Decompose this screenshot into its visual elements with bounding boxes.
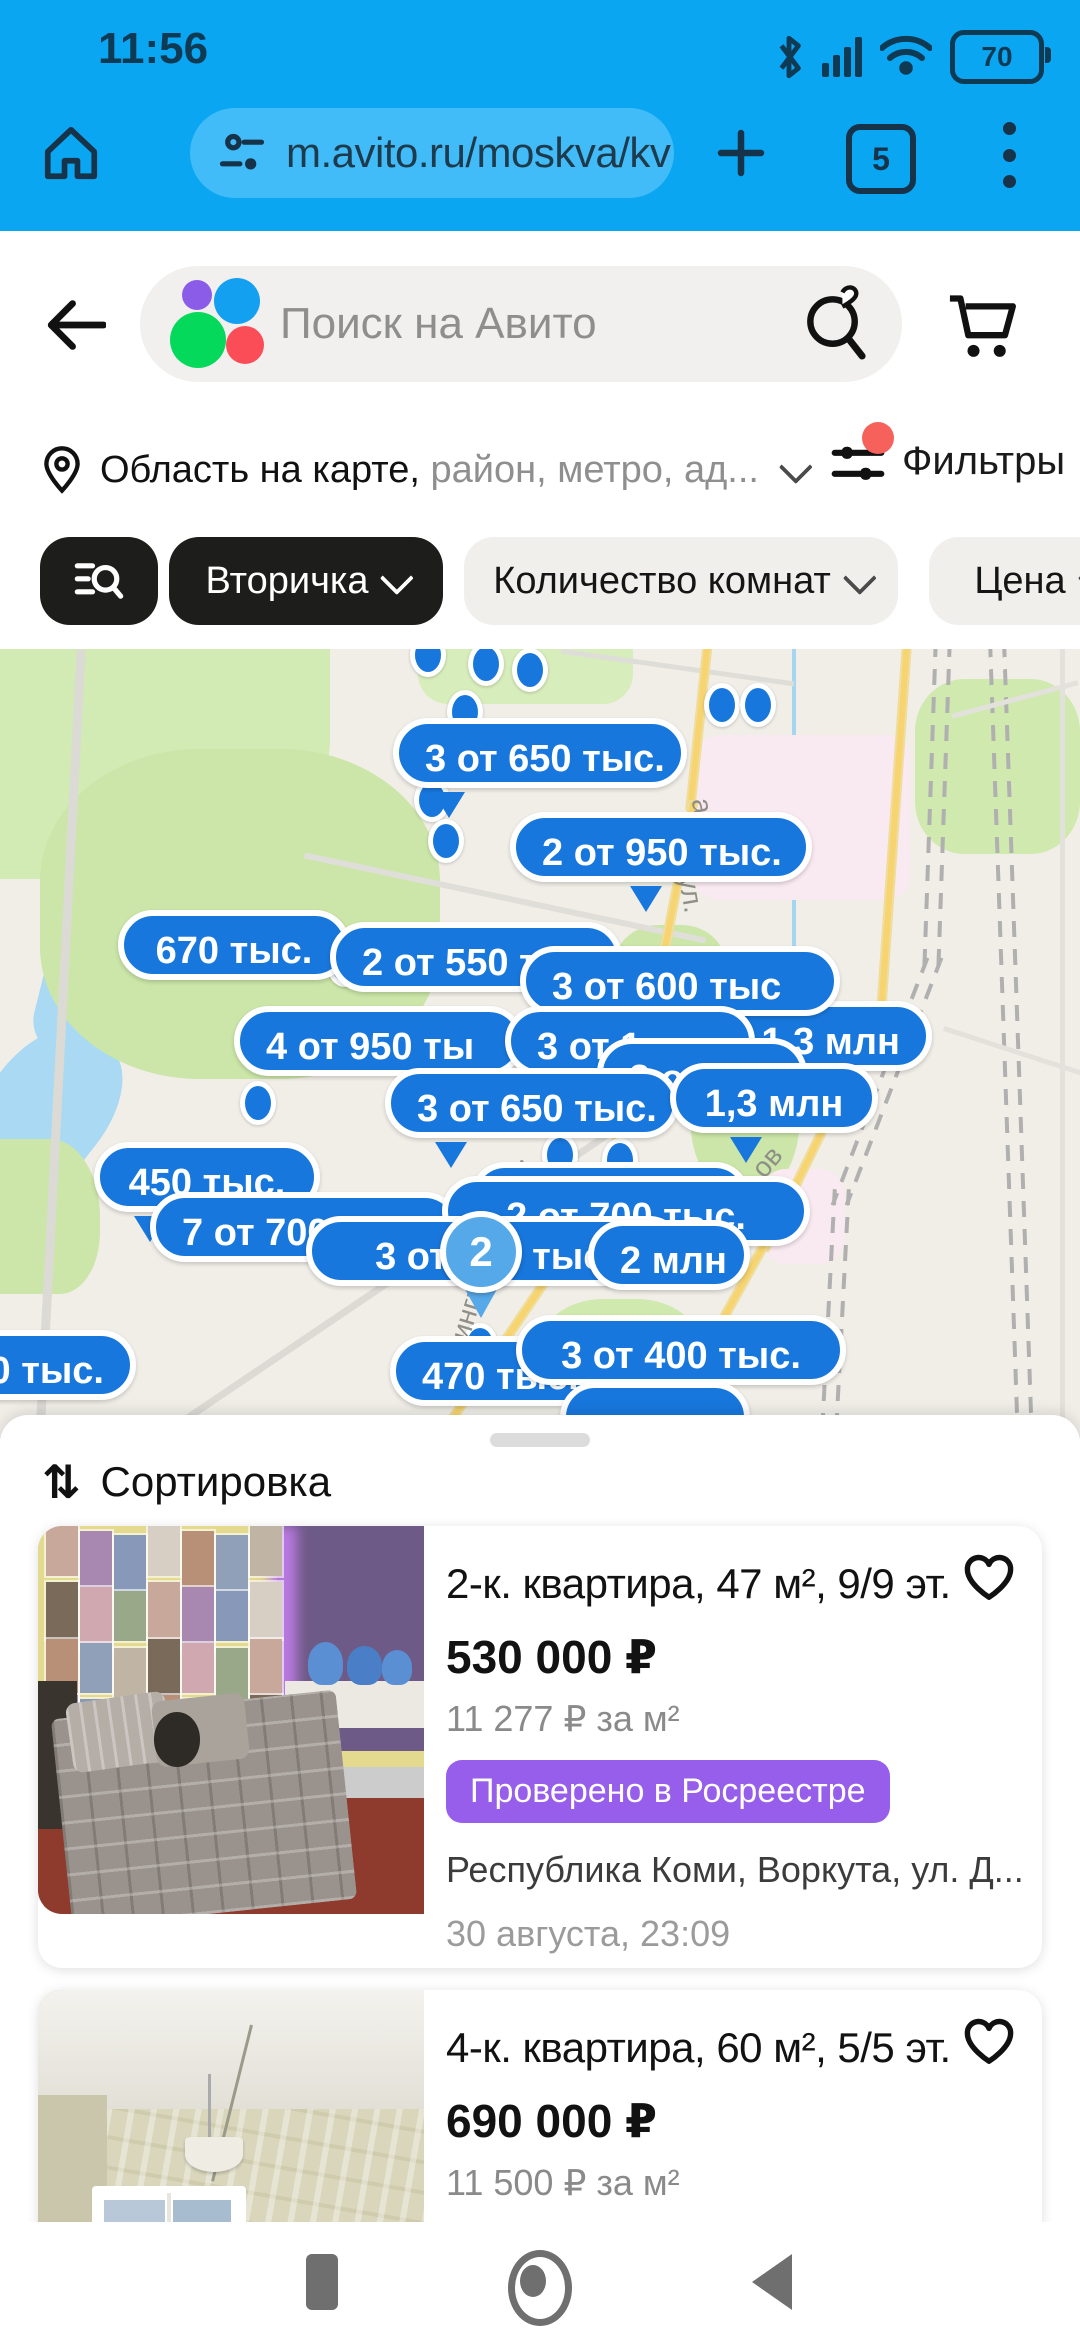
browser-menu-button[interactable] — [1002, 122, 1016, 188]
listing-address: Республика Коми, Воркута, ул. Д... — [446, 1849, 1006, 1891]
price-chip[interactable]: Цена — [929, 537, 1080, 625]
chevron-down-icon — [380, 561, 414, 595]
listing-price-per-m2: 11 277 ₽ за м² — [446, 1698, 1006, 1740]
map-price-bubble[interactable]: 1,3 млн — [670, 1063, 878, 1133]
tab-switcher-button[interactable]: 5 — [846, 124, 916, 194]
sort-label: Сортировка — [101, 1458, 332, 1506]
battery-icon: 70 — [950, 30, 1044, 84]
search-list-icon — [73, 557, 125, 605]
map-dot[interactable] — [512, 649, 548, 692]
site-settings-icon[interactable] — [216, 127, 268, 179]
back-nav-button[interactable] — [752, 2254, 792, 2310]
search-input[interactable]: Поиск на Авито — [140, 266, 902, 382]
rooms-chip-label: Количество комнат — [493, 560, 831, 603]
map-price-bubble[interactable]: 2 от 950 тыс. — [510, 812, 812, 882]
battery-level: 70 — [981, 41, 1012, 73]
home-nav-button[interactable] — [508, 2250, 572, 2326]
search-placeholder: Поиск на Авито — [280, 299, 798, 349]
map-price-bubble[interactable]: 0 тыс. — [0, 1330, 136, 1400]
map-dot[interactable] — [428, 819, 464, 863]
tab-count: 5 — [872, 141, 890, 178]
saved-search-chip[interactable] — [40, 537, 158, 625]
chevron-down-icon — [779, 450, 813, 484]
chevron-down-icon — [843, 561, 877, 595]
search-favorites-icon[interactable] — [798, 284, 872, 364]
map-cluster-pin[interactable]: 2 — [440, 1211, 522, 1293]
filters-label: Фильтры — [902, 439, 1065, 484]
listing-price: 690 000 ₽ — [446, 2094, 1006, 2148]
cart-button[interactable] — [944, 288, 1024, 364]
category-chip[interactable]: Вторичка — [169, 537, 443, 625]
map-dot[interactable] — [704, 683, 740, 727]
filters-icon — [830, 436, 886, 486]
map-price-bubble[interactable]: 670 тыс. — [118, 910, 350, 980]
signal-icon — [822, 37, 862, 77]
map-dot[interactable] — [740, 683, 776, 727]
sort-button[interactable]: ⇅ Сортировка — [42, 1455, 331, 1509]
sort-icon: ⇅ — [42, 1455, 81, 1509]
listing-photo — [38, 1526, 424, 1914]
bluetooth-icon — [774, 34, 804, 80]
filters-button[interactable]: Фильтры — [830, 436, 1065, 486]
map-dot[interactable] — [468, 649, 504, 686]
geo-primary: Область на карте, — [100, 449, 420, 492]
url-text: m.avito.ru/moskva/kv — [286, 129, 670, 177]
map-price-bubble[interactable]: 3 от 400 тыс. — [516, 1315, 846, 1385]
category-chip-label: Вторичка — [206, 560, 369, 603]
home-button[interactable] — [36, 118, 106, 188]
map-price-bubble[interactable]: 2 млн — [588, 1220, 750, 1290]
listing-date: 30 августа, 23:09 — [446, 1913, 1006, 1955]
filters-alert-dot — [862, 422, 894, 454]
verified-badge: Проверено в Росреестре — [446, 1760, 890, 1823]
status-time: 11:56 — [98, 24, 208, 74]
map-bubble-tail — [630, 886, 662, 912]
map-price-bubble[interactable]: 3 от 650 тыс. — [385, 1068, 679, 1138]
sheet-drag-handle[interactable] — [490, 1433, 590, 1447]
map-bubble-tail — [435, 1142, 467, 1168]
map-bubble-tail — [730, 1137, 762, 1163]
phone-screen: 11:56 70 — [0, 0, 1080, 2340]
listing-card[interactable]: 2-к. квартира, 47 м², 9/9 эт. 530 000 ₽ … — [38, 1526, 1042, 1968]
geo-secondary: район, метро, ад... — [420, 449, 759, 492]
map-dot[interactable] — [240, 1081, 276, 1125]
map-price-bubble[interactable]: 3 от 650 тыс. — [393, 718, 687, 788]
listing-price: 530 000 ₽ — [446, 1630, 1006, 1684]
map-dot[interactable] — [410, 649, 446, 677]
listing-title: 2-к. квартира, 47 м², 9/9 эт. — [446, 1554, 986, 1614]
wifi-icon — [880, 34, 932, 80]
map-pin-icon — [40, 444, 84, 496]
rooms-chip[interactable]: Количество комнат — [464, 537, 898, 625]
results-sheet: ⇅ Сортировка — [0, 1415, 1080, 2340]
new-tab-button[interactable] — [706, 118, 776, 188]
price-chip-label: Цена — [974, 560, 1065, 603]
url-bar[interactable]: m.avito.ru/moskva/kv — [190, 108, 674, 198]
android-navbar — [0, 2222, 1080, 2340]
map-canvas[interactable]: аул.овЛенинградская ул.3 от 650 тыс.2 от… — [0, 649, 1080, 1439]
recents-button[interactable] — [306, 2254, 338, 2310]
map-price-bubble[interactable]: 4 от 950 ты — [234, 1006, 524, 1076]
back-button[interactable] — [44, 296, 106, 354]
listing-title: 4-к. квартира, 60 м², 5/5 эт. — [446, 2018, 986, 2078]
map-bubble-tail — [433, 792, 465, 818]
avito-logo-icon — [170, 278, 262, 370]
browser-chrome: 11:56 70 — [0, 0, 1080, 231]
listing-price-per-m2: 11 500 ₽ за м² — [446, 2162, 1006, 2204]
